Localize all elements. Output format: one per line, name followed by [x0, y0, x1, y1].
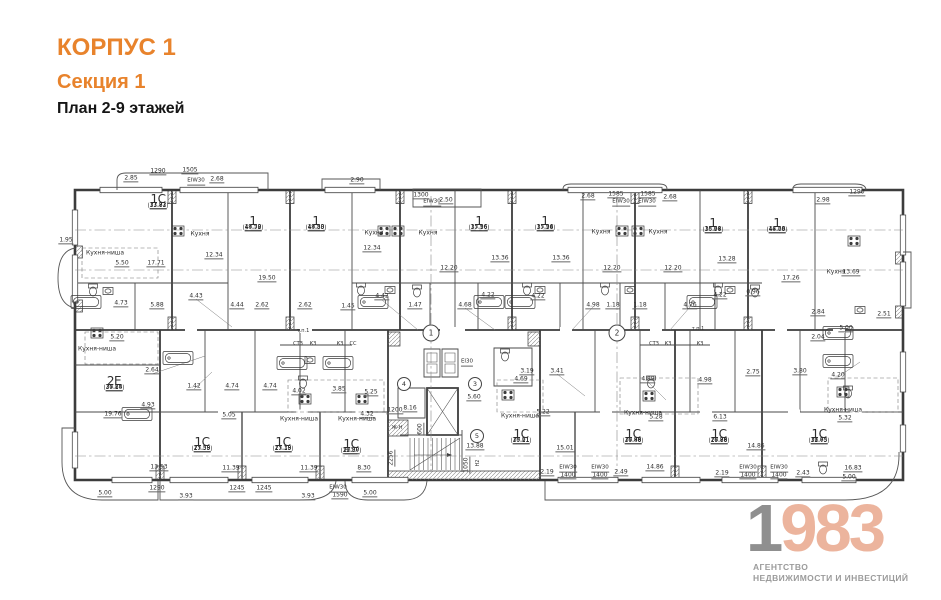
fixtures	[71, 226, 865, 474]
balcony-railings	[58, 173, 911, 500]
logo-year: 1983	[746, 500, 936, 559]
leader-lines	[152, 299, 860, 400]
pylon-hatching	[76, 191, 903, 481]
walls	[75, 190, 903, 480]
door-openings	[185, 327, 862, 415]
agency-logo: 1983 АГЕНТСТВО НЕДВИЖИМОСТИ И ИНВЕСТИЦИЙ	[746, 500, 936, 585]
stair-elevator-core	[388, 348, 532, 472]
logo-digit-1: 1	[746, 491, 780, 566]
axis-lines	[75, 196, 903, 472]
logo-digits-983: 983	[780, 491, 883, 566]
windows	[72, 187, 905, 482]
logo-tagline-line2: НЕДВИЖИМОСТИ И ИНВЕСТИЦИЙ	[753, 573, 936, 584]
page: КОРПУС 1 Секция 1 План 2-9 этажей	[0, 0, 941, 600]
